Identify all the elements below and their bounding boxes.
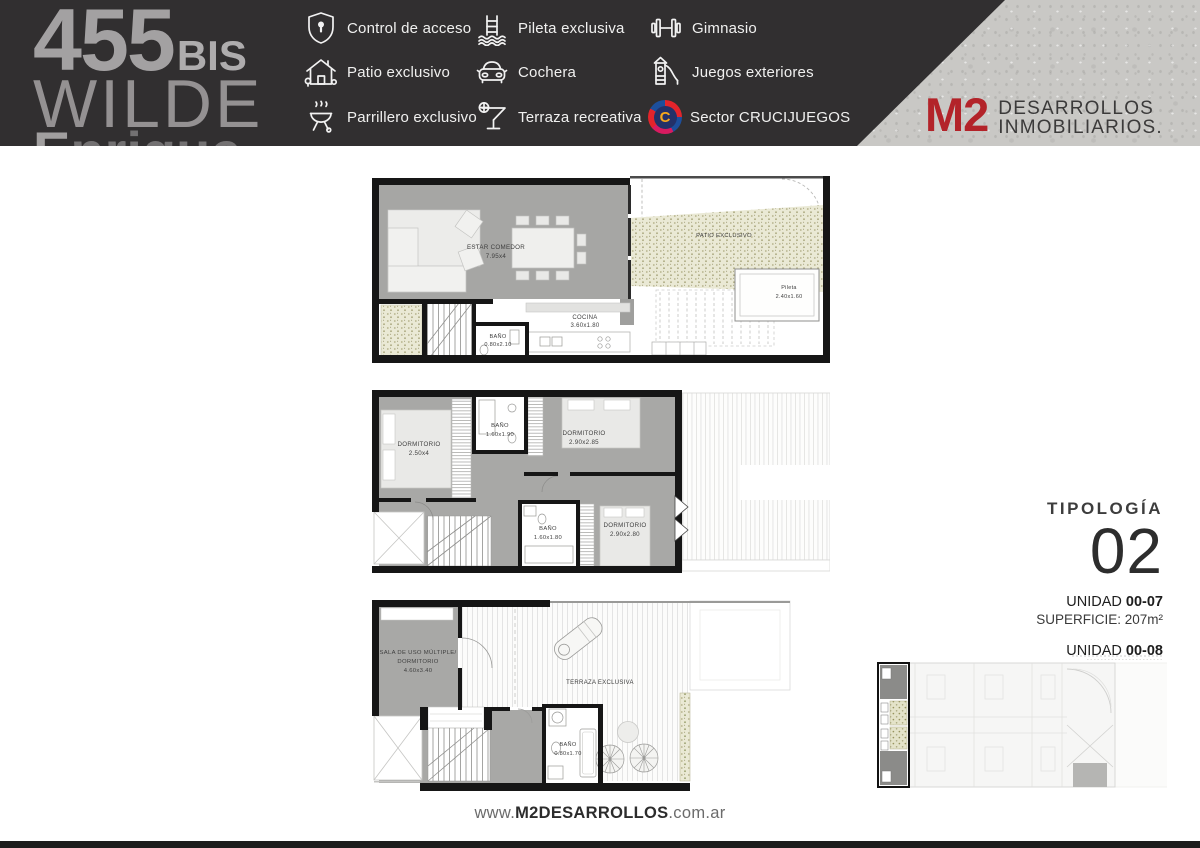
amenity-label: Juegos exteriores (692, 64, 814, 81)
room-label: PATIO EXCLUSIVO (696, 233, 752, 239)
brand-line-1: DESARROLLOS (998, 99, 1163, 118)
highlighted-unit (878, 663, 909, 787)
amenity-patio: Patio exclusivo (303, 52, 450, 92)
room-label: BAÑO (489, 333, 506, 340)
brand-text: DESARROLLOS INMOBILIARIOS. (998, 99, 1163, 137)
amenity-label: Sector CRUCIJUEGOS (690, 109, 850, 126)
typology-panel: TIPOLOGÍA 02 UNIDAD 00-07 SUPERFICIE: 20… (900, 499, 1163, 676)
room-dims: 1.60x1.90 (486, 432, 514, 438)
logo-street-line-clipped: Enrique (33, 131, 263, 146)
pool-icon (474, 10, 510, 46)
room-label: DORMITORIO (397, 659, 438, 665)
amenity-control-de-acceso: Control de acceso (303, 8, 471, 48)
amenity-label: Terraza recreativa (518, 109, 642, 126)
m2-logo: M2 (925, 96, 988, 134)
crucijuegos-icon: C (648, 100, 682, 134)
crucijuegos-letter: C (654, 106, 677, 129)
room-label: DORMITORIO (397, 441, 440, 448)
amenity-cochera: Cochera (474, 52, 576, 92)
terrace-icon (474, 99, 510, 135)
amenity-pileta: Pileta exclusiva (474, 8, 625, 48)
room-label: SALA DE USO MÚLTIPLE/ (380, 649, 457, 656)
unit-area: SUPERFICIE: 207m² (900, 612, 1163, 627)
room-dims: 1.60x1.80 (534, 535, 562, 541)
room-dims: 3.60x1.80 (570, 323, 599, 329)
room-dims: 2.90x2.85 (569, 439, 599, 446)
developer-brand: M2 DESARROLLOS INMOBILIARIOS. (925, 96, 1163, 137)
room-label: DORMITORIO (562, 430, 605, 437)
unit-code: UNIDAD 00-07 (900, 594, 1163, 610)
brand-line-2: INMOBILIARIOS. (998, 118, 1163, 137)
room-label: ESTAR COMEDOR (467, 244, 525, 251)
amenity-juegos: Juegos exteriores (648, 52, 814, 92)
site-key-plan (877, 655, 1167, 790)
car-icon (474, 54, 510, 90)
roof-floor-plan: SALA DE USO MÚLTIPLE/ DORMITORIO 4.60x3.… (372, 598, 792, 793)
amenity-terraza: Terraza recreativa (474, 97, 642, 137)
room-label: BAÑO (559, 741, 576, 748)
amenity-gimnasio: Gimnasio (648, 8, 757, 48)
first-floor-plan: DORMITORIO 2.50x4 BAÑO 1.60x1.90 DORMITO… (372, 388, 830, 573)
parasol (630, 744, 658, 772)
amenity-label: Cochera (518, 64, 576, 81)
room-dims: 4.60x3.40 (404, 668, 433, 674)
unit-info-00-07: UNIDAD 00-07 SUPERFICIE: 207m² (900, 594, 1163, 627)
project-logo: 455BIS WILDE Enrique (33, 4, 263, 146)
website-url[interactable]: www.M2DESARROLLOS.com.ar (0, 804, 1200, 823)
grill-icon (303, 99, 339, 135)
room-label: TERRAZA EXCLUSIVA (566, 680, 634, 686)
playground-icon (648, 54, 684, 90)
room-label: DORMITORIO (603, 522, 646, 529)
room-dims: 2.90x2.80 (610, 531, 640, 538)
brochure-page: 455BIS WILDE Enrique Control de acceso (0, 0, 1200, 848)
access-control-icon (303, 10, 339, 46)
room-label: BAÑO (491, 422, 509, 429)
amenity-label: Parrillero exclusivo (347, 109, 477, 126)
amenity-parrillero: Parrillero exclusivo (303, 97, 477, 137)
amenity-label: Control de acceso (347, 20, 471, 37)
bottom-bar (0, 841, 1200, 848)
room-dims: 2.50x4 (409, 450, 430, 457)
room-label: BAÑO (539, 525, 557, 532)
room-dims: 2.40x1.60 (776, 294, 803, 300)
ground-floor-plan: ESTAR COMEDOR 7.95x4 COCINA 3.60x1.80 BA… (372, 172, 830, 363)
patio-icon (303, 54, 339, 90)
room-dims: 7.95x4 (486, 253, 507, 260)
room-label: COCINA (572, 315, 597, 321)
typology-number: 02 (900, 521, 1163, 582)
room-label: Pileta (781, 285, 797, 291)
amenity-label: Gimnasio (692, 20, 757, 37)
amenity-label: Patio exclusivo (347, 64, 450, 81)
header: 455BIS WILDE Enrique Control de acceso (0, 0, 1200, 146)
gym-icon (648, 10, 684, 46)
amenity-label: Pileta exclusiva (518, 20, 625, 37)
room-dims: 0.80x1.70 (554, 751, 581, 757)
room-dims: 0.80x2.10 (484, 342, 511, 348)
amenity-crucijuegos: C Sector CRUCIJUEGOS (648, 97, 850, 137)
